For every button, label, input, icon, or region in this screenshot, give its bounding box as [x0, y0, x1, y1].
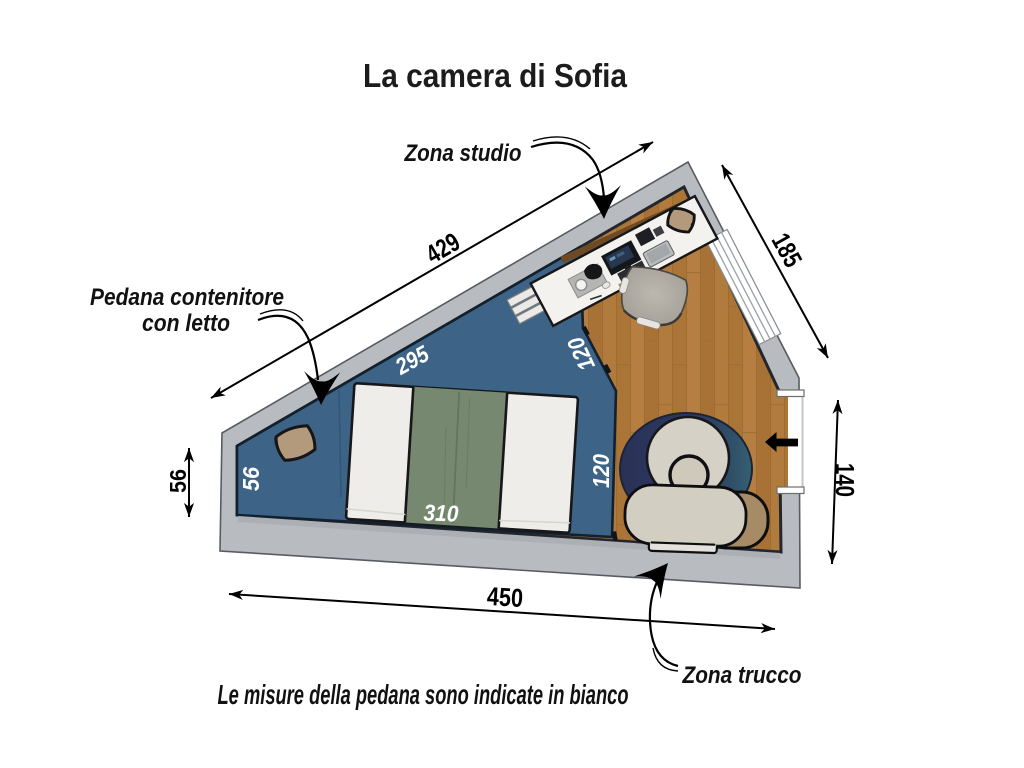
svg-text:56: 56	[238, 467, 264, 491]
svg-text:120: 120	[588, 454, 614, 488]
svg-text:450: 450	[486, 581, 524, 613]
svg-text:56: 56	[165, 469, 191, 493]
svg-text:La camera di Sofia: La camera di Sofia	[363, 57, 628, 94]
svg-text:Pedana contenitore: Pedana contenitore	[90, 284, 284, 311]
svg-text:310: 310	[423, 499, 459, 526]
svg-text:140: 140	[830, 463, 860, 497]
svg-text:Zona trucco: Zona trucco	[682, 662, 802, 689]
svg-text:con letto: con letto	[142, 310, 230, 337]
svg-text:Le misure della pedana sono in: Le misure della pedana sono indicate in …	[218, 679, 629, 710]
svg-text:Zona studio: Zona studio	[404, 140, 522, 167]
